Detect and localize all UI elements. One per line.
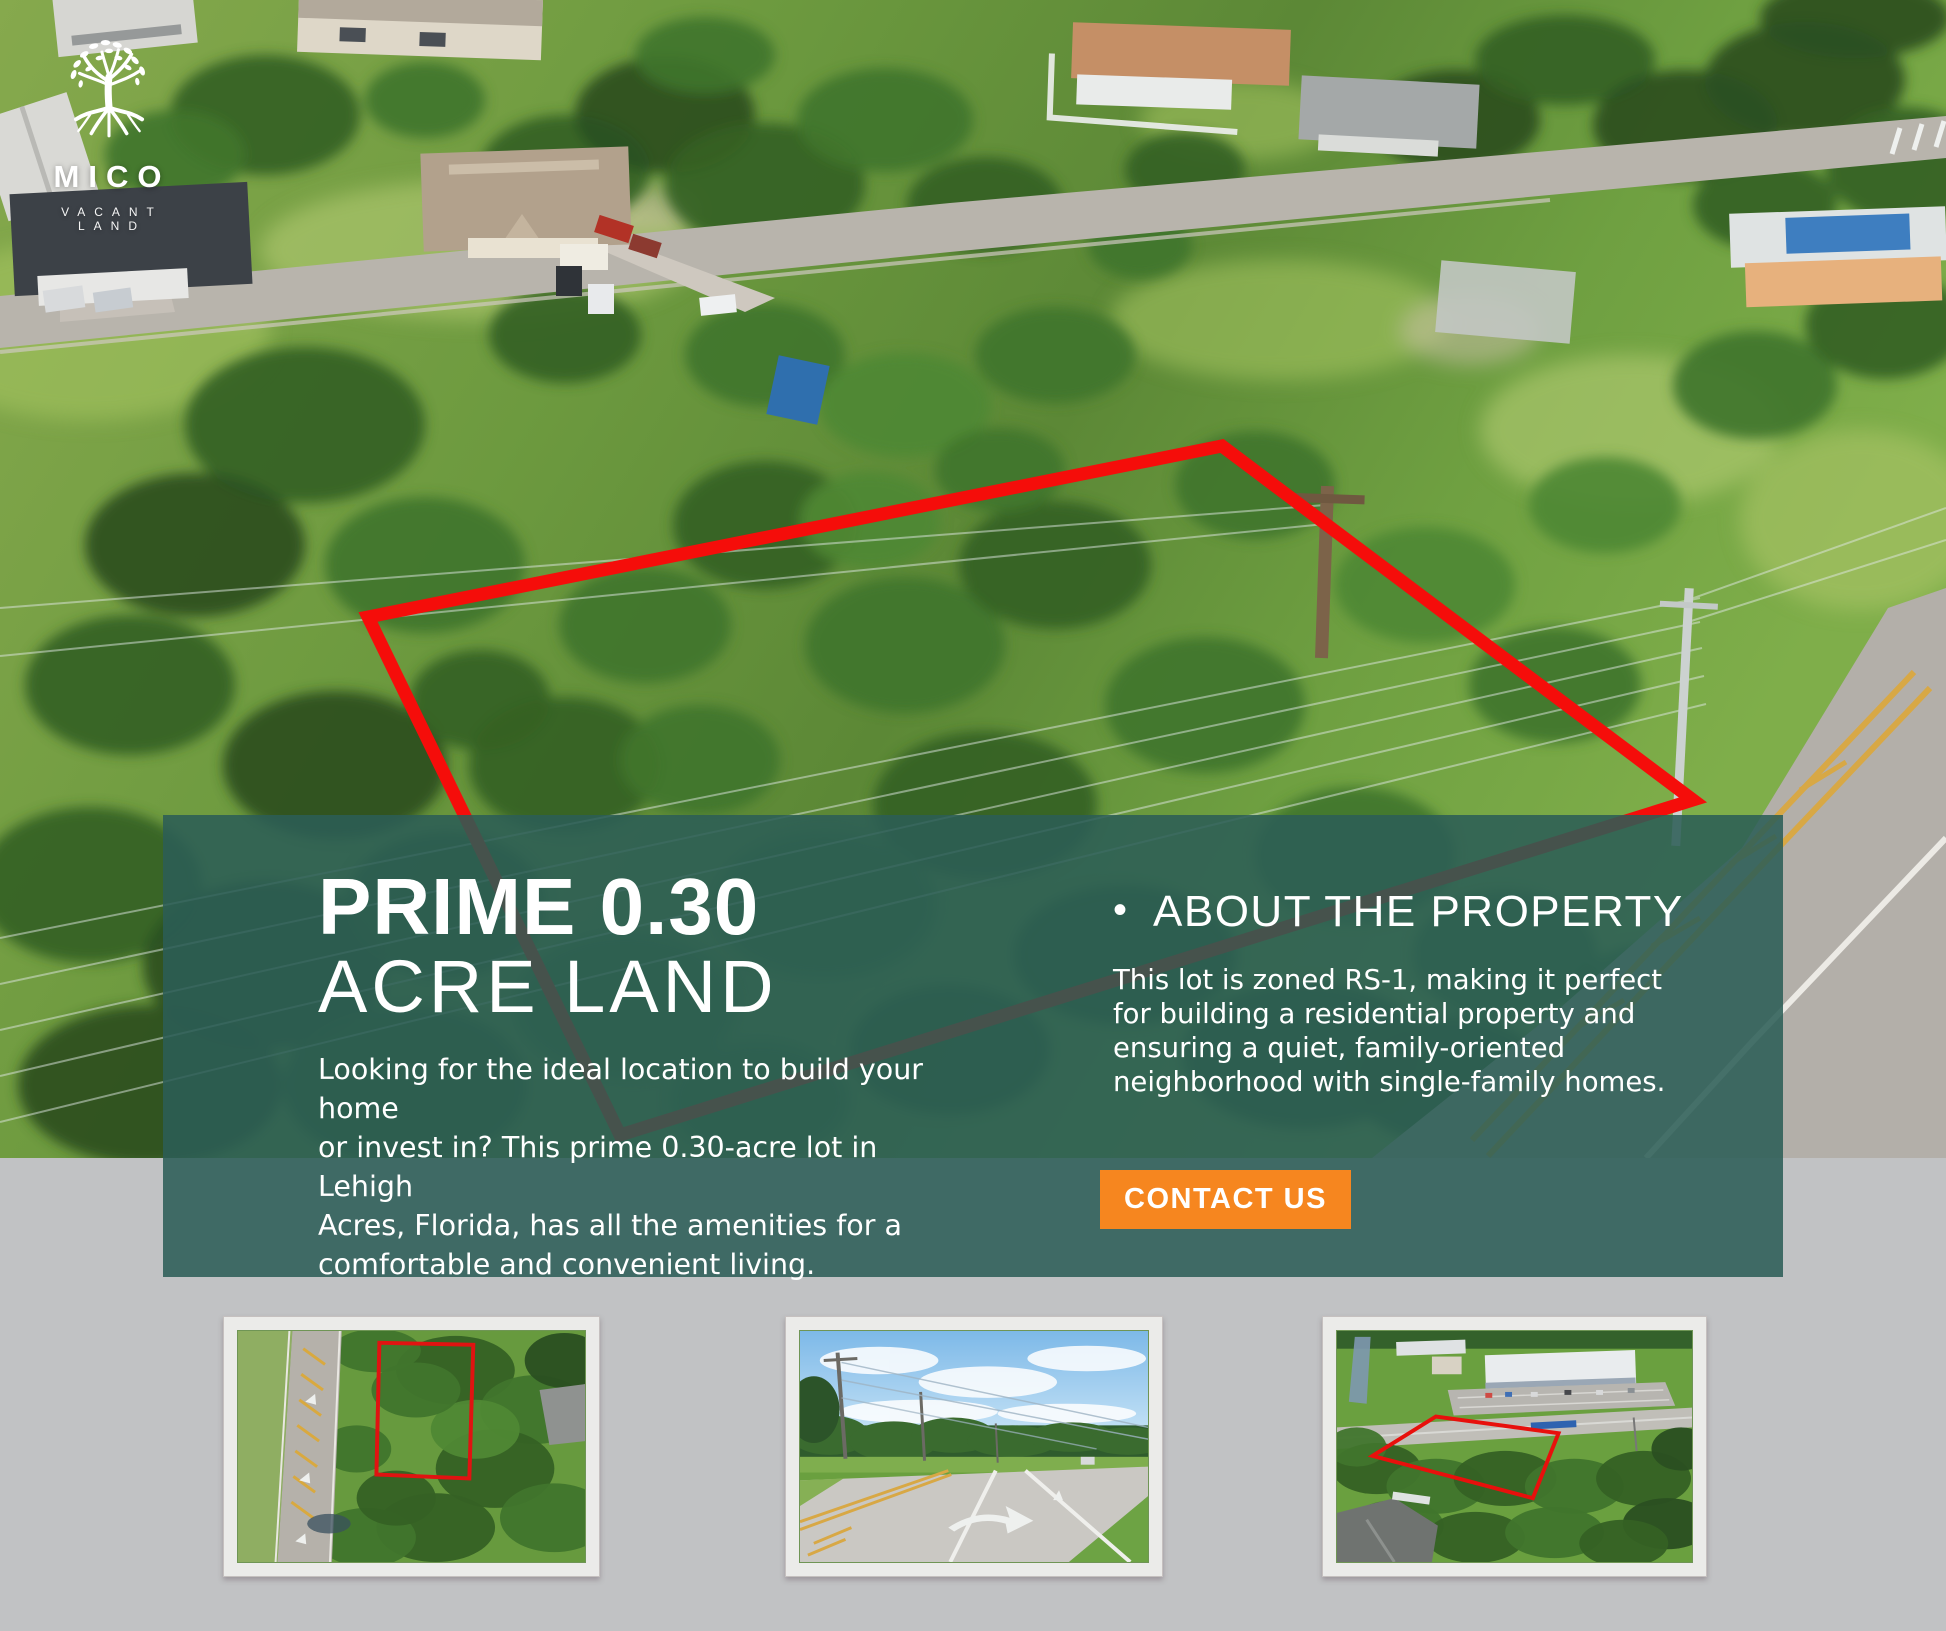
house [1298,75,1480,158]
house [1729,206,1946,307]
tree-blob [1105,637,1305,773]
thumbnail-photo [799,1330,1149,1563]
thumbnail-photo [1336,1330,1693,1563]
headline-light: ACRE LAND [318,950,958,1024]
info-panel: PRIME 0.30 ACRE LAND Looking for the ide… [163,815,1783,1277]
about-body: This lot is zoned RS-1, making it perfec… [1113,963,1753,1099]
brand-name: MICO [24,159,200,195]
brand-logo: MICO VACANT LAND [18,30,200,233]
car [556,266,582,296]
about-column: • ABOUT THE PROPERTY This lot is zoned R… [1113,887,1753,1099]
thumbnail-photo [237,1330,586,1563]
about-heading: • ABOUT THE PROPERTY [1113,887,1753,937]
tree-with-roots-icon [50,30,168,152]
tree-blob [635,17,775,93]
thumb2-scene [800,1331,1148,1562]
headline-bold: PRIME 0.30 [318,865,958,948]
tree-blob [85,473,305,617]
thumbnail-aerial-oblique-view[interactable] [1322,1316,1707,1577]
tree-blob [975,307,1135,403]
brand-tagline: VACANT LAND [24,205,200,233]
thumb3-scene [1337,1331,1692,1562]
thumbnail-aerial-top-view[interactable] [223,1316,600,1577]
tree-blob [357,1471,436,1526]
contact-us-button[interactable]: CONTACT US [1100,1170,1351,1229]
tree-blob [1529,457,1681,553]
thumbnail-street-view[interactable] [785,1316,1163,1577]
tree-blob [365,62,485,138]
tree-blob [325,497,525,633]
car [699,294,737,316]
tree-blob [797,68,973,172]
house [297,0,543,60]
car [588,284,614,314]
thumb1-scene [238,1331,585,1562]
flyer-page: { "brand": { "name": "MICO", "tagline": … [0,0,1946,1631]
tree-blob [371,1362,460,1417]
bullet-icon: • [1113,890,1127,930]
tree-blob [1110,260,1450,380]
car [1081,1457,1095,1465]
tree-band [1337,1331,1692,1349]
house [1435,260,1576,343]
tree-blob [559,567,731,683]
property-description: Looking for the ideal location to build … [318,1050,958,1284]
about-title: ABOUT THE PROPERTY [1153,887,1684,937]
headline-column: PRIME 0.30 ACRE LAND Looking for the ide… [318,865,958,1284]
